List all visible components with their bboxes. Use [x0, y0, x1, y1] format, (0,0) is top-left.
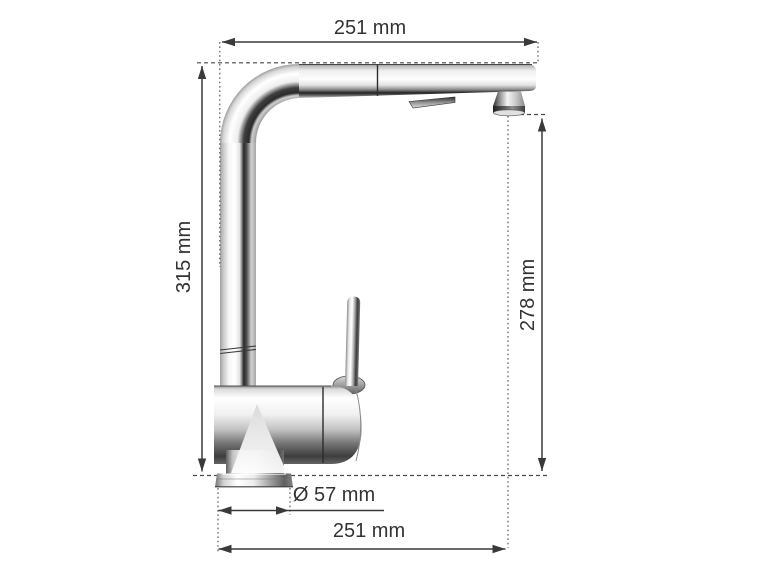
dimension-label-spout-height: 278 mm	[518, 259, 538, 331]
dimension-diagram: 251 mm 315 mm 278 mm Ø 57 mm 251 mm	[0, 0, 770, 578]
base-flare	[215, 474, 293, 488]
pipe-bend	[220, 64, 299, 143]
dimension-label-bottom-reach: 251 mm	[333, 521, 405, 541]
aerator-face	[494, 110, 525, 116]
diagram-canvas	[0, 0, 770, 578]
outlet-funnel	[493, 92, 525, 107]
spray-clip	[409, 97, 455, 108]
dimension-label-top-width: 251 mm	[334, 18, 406, 38]
dimension-label-base-diameter: Ø 57 mm	[293, 485, 375, 505]
dimension-label-total-height: 315 mm	[174, 221, 194, 293]
faucet-illustration	[214, 64, 536, 487]
handle-lever	[345, 296, 360, 386]
